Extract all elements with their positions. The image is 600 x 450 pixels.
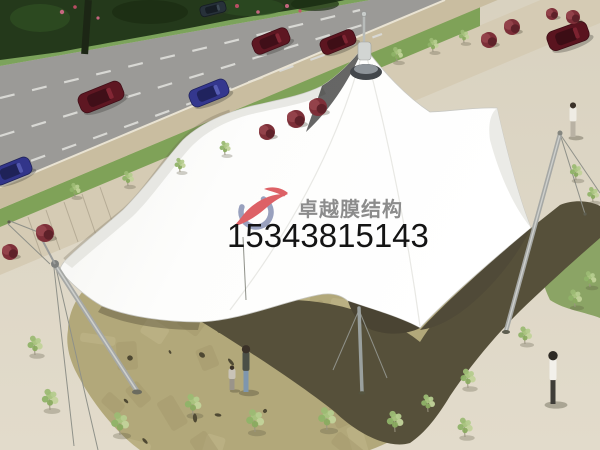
tree-foliage [389,411,395,417]
tree-shadow [124,185,136,189]
tree-foliage [114,412,121,419]
tree-shadow [221,154,232,158]
tree-foliage [464,31,468,35]
tree-foliage [460,418,466,424]
tree-shadow [459,435,474,441]
bush-foliage [488,37,497,46]
bush-foliage [9,249,18,258]
tree-foliage [221,141,225,145]
tree-foliage [124,171,128,175]
tree-foliage [190,405,196,411]
phone-number-text: 15343815143 [227,217,429,254]
tree-foliage [252,421,259,428]
tree-shadow [586,286,599,291]
person-head [548,351,557,360]
tree-foliage [328,410,334,416]
tree-foliage [466,420,471,425]
person-legs [571,121,576,137]
tree-foliage [588,279,593,284]
tree-shadow [461,42,472,46]
tree-foliage [395,55,399,59]
tree-foliage [51,392,57,398]
bush-foliage [551,12,558,19]
tree-shadow [29,353,44,359]
tree-foliage [591,273,595,277]
tree-foliage [223,148,227,152]
tree-foliage [577,166,581,170]
cable-anchor [7,220,10,223]
tree-foliage [591,195,595,199]
flower [298,9,301,12]
tree-foliage [576,292,581,297]
tree-foliage [469,371,474,376]
tree-shadow [393,61,405,65]
tree-foliage [32,346,38,352]
tree-foliage [321,407,328,414]
tree-foliage [523,336,528,341]
tree-foliage [573,299,578,304]
tree-shadow [71,196,82,200]
tree-foliage [249,409,256,416]
tree-shadow [113,433,131,440]
cable-anchor [583,212,586,215]
tree-foliage [429,38,433,42]
tree-shadow [176,171,187,175]
architectural-rendering: 卓越膜结构 15343815143 [0,0,600,450]
tree-shadow [320,428,338,435]
tree-foliage [324,419,331,426]
tree-foliage [526,329,531,334]
tree-shadow [44,408,61,414]
person-torso [243,352,250,371]
bush-foliage [44,230,54,240]
tree-foliage [426,404,431,409]
tree-foliage [461,30,465,34]
tree-shadow [248,430,266,437]
flower [60,10,64,14]
flower [285,4,289,8]
person-head [570,102,576,108]
bush-foliage [511,24,520,33]
tree-foliage [178,165,182,169]
tree-foliage [570,289,575,294]
tree-foliage [572,164,577,169]
tree-foliage [126,179,130,183]
tree-foliage [398,49,402,53]
bush-foliage [266,129,275,138]
tree-shadow [187,413,204,419]
bush-foliage [572,15,580,23]
tree-foliage [465,379,471,385]
person-torso [570,107,577,121]
tree-foliage [520,326,525,331]
flower [235,4,239,8]
tree-foliage [176,158,180,162]
tree-foliage [256,412,262,418]
tree-foliage [429,397,434,402]
tree-shadow [570,306,584,311]
bush-foliage [317,104,327,114]
tree-shadow [423,411,437,416]
tree-foliage [117,424,124,431]
person-legs [551,379,556,404]
tree-foliage [462,428,468,434]
tree-foliage [392,422,398,428]
tree-shadow [429,51,440,55]
tree-foliage [194,397,200,403]
tree-foliage [463,369,469,375]
tree-foliage [71,183,75,187]
tree-foliage [396,414,402,420]
tree-foliage [187,394,193,400]
bush-foliage [295,116,305,126]
flower [256,10,260,14]
tree-foliage [180,160,184,164]
tree-shadow [389,430,406,436]
tree-foliage [423,394,428,399]
tree-foliage [433,40,437,44]
flower [73,5,77,9]
tree-foliage [36,338,41,343]
tree-foliage [129,173,133,177]
tree-foliage [44,389,50,395]
person-legs [230,378,235,390]
tree-shadow [572,179,585,184]
person-torso [229,369,236,379]
person-torso [550,358,557,380]
person-shadow [239,390,259,396]
tree-foliage [47,400,53,406]
tree-shadow [462,386,477,392]
tree-foliage [462,37,466,41]
tree-foliage [589,187,593,191]
tree-foliage [30,336,36,342]
person-shadow [545,401,568,408]
flower [96,16,99,19]
person-head [230,366,234,370]
person-head [242,345,250,353]
tree-foliage [75,185,79,189]
tree-foliage [121,415,127,421]
person-legs [244,370,249,392]
tree-foliage [594,189,598,193]
tree-foliage [586,271,591,276]
tree-foliage [431,45,435,49]
tree-foliage [73,190,77,194]
tree-foliage [574,172,579,177]
tree-foliage [225,143,229,147]
tree-foliage [393,47,397,51]
tree-shadow [520,343,534,348]
